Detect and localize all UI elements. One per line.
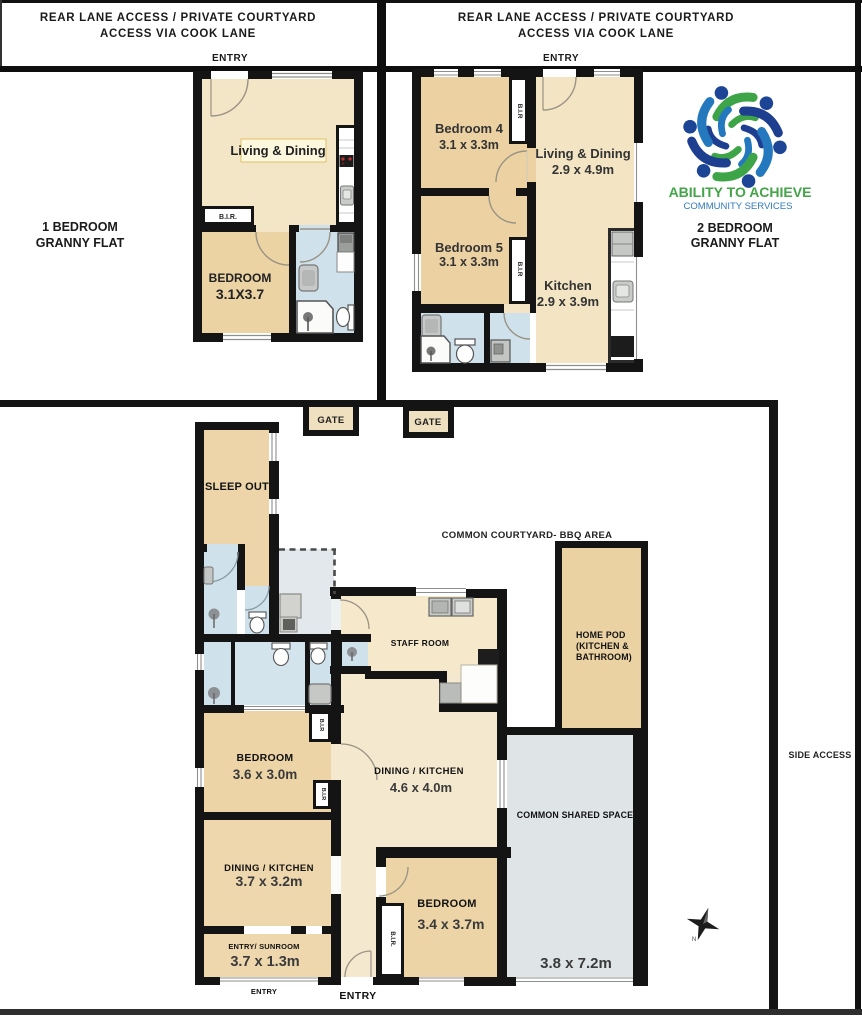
svg-text:COMMON COURTYARD- BBQ AREA: COMMON COURTYARD- BBQ AREA <box>442 530 613 541</box>
svg-text:3.7 x 1.3m: 3.7 x 1.3m <box>230 954 299 970</box>
svg-text:REAR LANE ACCESS / PRIVATE COU: REAR LANE ACCESS / PRIVATE COURTYARD <box>458 12 734 24</box>
svg-text:ABILITY TO ACHIEVE: ABILITY TO ACHIEVE <box>669 184 812 200</box>
svg-text:SLEEP OUT: SLEEP OUT <box>205 481 269 493</box>
svg-text:BATHROOM): BATHROOM) <box>576 652 632 662</box>
svg-text:COMMON SHARED SPACE: COMMON SHARED SPACE <box>517 810 634 820</box>
svg-text:ENTRY: ENTRY <box>251 987 277 996</box>
svg-text:ACCESS VIA COOK LANE: ACCESS VIA COOK LANE <box>518 28 674 40</box>
svg-text:B.I.R: B.I.R <box>318 719 324 732</box>
svg-text:ENTRY: ENTRY <box>339 990 376 1002</box>
svg-text:BEDROOM: BEDROOM <box>209 271 272 285</box>
svg-text:GATE: GATE <box>414 417 441 428</box>
svg-text:Living & Dining: Living & Dining <box>230 143 325 158</box>
svg-text:2 BEDROOM: 2 BEDROOM <box>697 221 773 235</box>
svg-text:BEDROOM: BEDROOM <box>417 898 477 910</box>
svg-text:ENTRY/ SUNROOM: ENTRY/ SUNROOM <box>228 942 299 951</box>
svg-text:GRANNY FLAT: GRANNY FLAT <box>691 236 780 250</box>
svg-text:ENTRY: ENTRY <box>543 53 579 64</box>
svg-text:B.I.R: B.I.R <box>516 104 523 119</box>
svg-text:GRANNY FLAT: GRANNY FLAT <box>36 236 125 250</box>
svg-text:BEDROOM: BEDROOM <box>237 752 294 764</box>
svg-text:Living & Dining: Living & Dining <box>535 146 630 161</box>
svg-text:3.1X3.7: 3.1X3.7 <box>216 286 264 302</box>
svg-text:STAFF ROOM: STAFF ROOM <box>391 638 450 648</box>
svg-text:GATE: GATE <box>317 415 344 426</box>
svg-text:3.4 x 3.7m: 3.4 x 3.7m <box>418 916 485 932</box>
svg-text:DINING / KITCHEN: DINING / KITCHEN <box>374 766 464 777</box>
svg-text:Kitchen: Kitchen <box>544 278 592 293</box>
svg-text:3.1 x 3.3m: 3.1 x 3.3m <box>439 255 499 269</box>
svg-text:3.6 x 3.0m: 3.6 x 3.0m <box>233 767 298 782</box>
svg-text:(KITCHEN &: (KITCHEN & <box>576 641 629 651</box>
svg-text:N: N <box>692 937 696 943</box>
svg-text:1 BEDROOM: 1 BEDROOM <box>42 220 118 234</box>
svg-text:ACCESS VIA COOK LANE: ACCESS VIA COOK LANE <box>100 28 256 40</box>
svg-text:2.9 x 3.9m: 2.9 x 3.9m <box>537 294 599 309</box>
svg-text:4.6 x 4.0m: 4.6 x 4.0m <box>390 780 452 795</box>
svg-text:3.1 x 3.3m: 3.1 x 3.3m <box>439 138 499 152</box>
svg-text:2.9 x 4.9m: 2.9 x 4.9m <box>552 162 614 177</box>
svg-text:COMMUNITY SERVICES: COMMUNITY SERVICES <box>684 201 793 212</box>
svg-text:Bedroom 5: Bedroom 5 <box>435 240 503 255</box>
svg-text:3.7 x 3.2m: 3.7 x 3.2m <box>236 873 303 889</box>
svg-text:B.I.R: B.I.R <box>320 788 326 801</box>
svg-text:B.I.R.: B.I.R. <box>389 931 395 947</box>
svg-text:B.I.R.: B.I.R. <box>219 214 237 221</box>
svg-text:REAR LANE ACCESS / PRIVATE COU: REAR LANE ACCESS / PRIVATE COURTYARD <box>40 12 316 24</box>
svg-text:HOME POD: HOME POD <box>576 630 626 640</box>
svg-text:B.I.R: B.I.R <box>516 262 523 277</box>
svg-text:Bedroom 4: Bedroom 4 <box>435 121 504 136</box>
svg-text:3.8 x 7.2m: 3.8 x 7.2m <box>540 955 612 972</box>
svg-text:ENTRY: ENTRY <box>212 53 248 64</box>
svg-text:SIDE ACCESS: SIDE ACCESS <box>789 750 852 760</box>
